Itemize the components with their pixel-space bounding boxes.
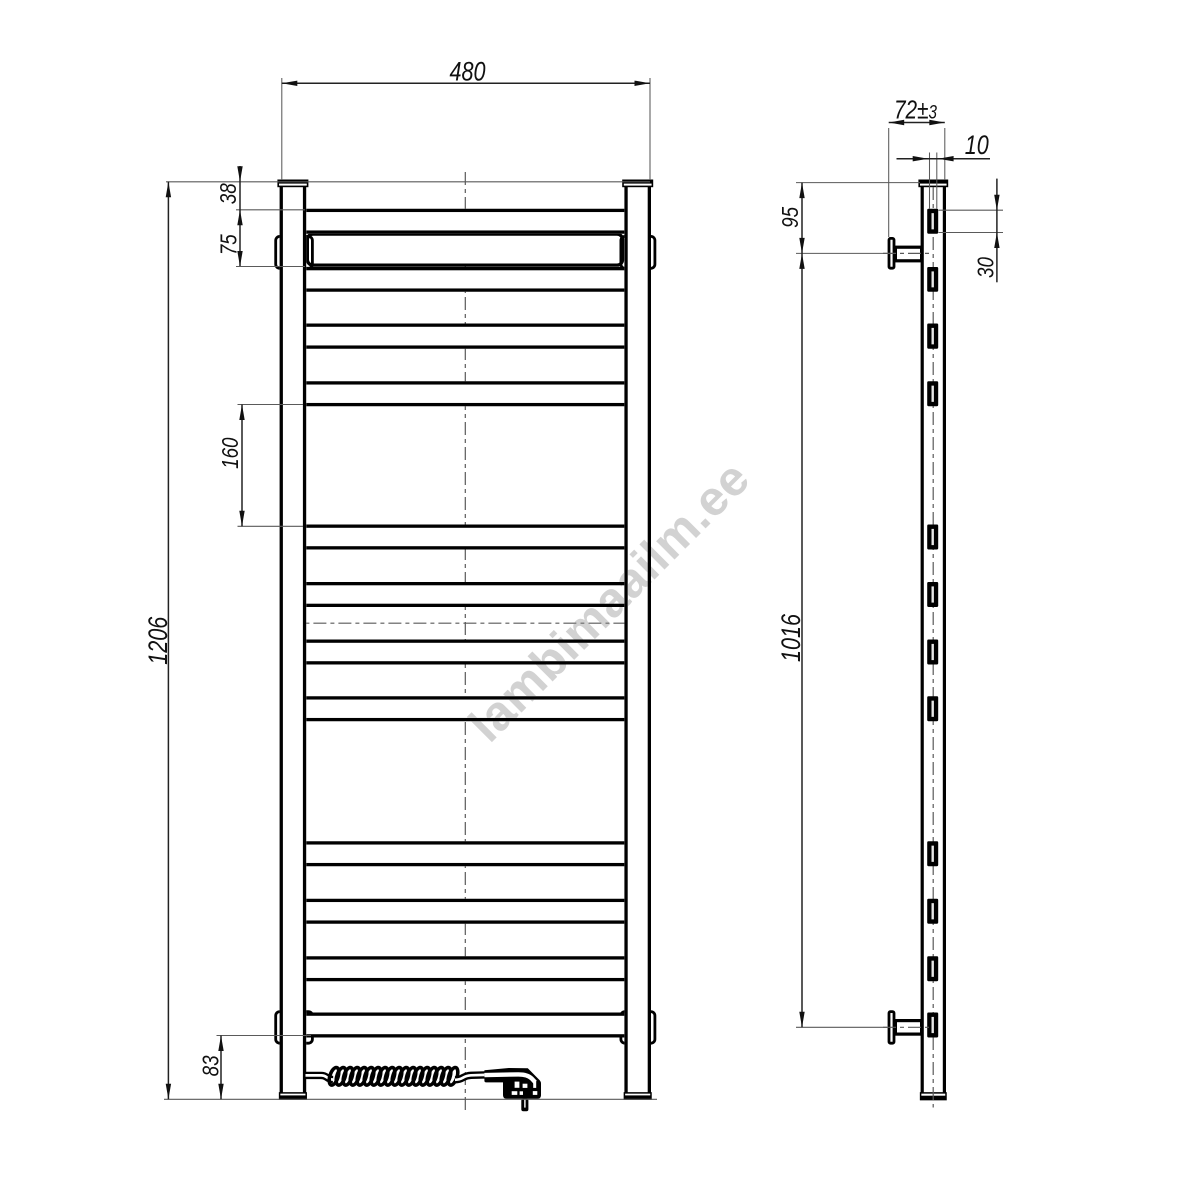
svg-text:30: 30 [973, 257, 1000, 278]
svg-text:1016: 1016 [777, 614, 807, 662]
svg-text:480: 480 [449, 57, 485, 87]
svg-text:10: 10 [965, 131, 989, 161]
svg-text:38: 38 [215, 183, 242, 204]
svg-text:83: 83 [198, 1055, 225, 1076]
svg-text:95: 95 [777, 207, 804, 228]
svg-text:1206: 1206 [144, 616, 174, 664]
svg-text:160: 160 [217, 437, 244, 468]
svg-text:75: 75 [216, 234, 243, 255]
